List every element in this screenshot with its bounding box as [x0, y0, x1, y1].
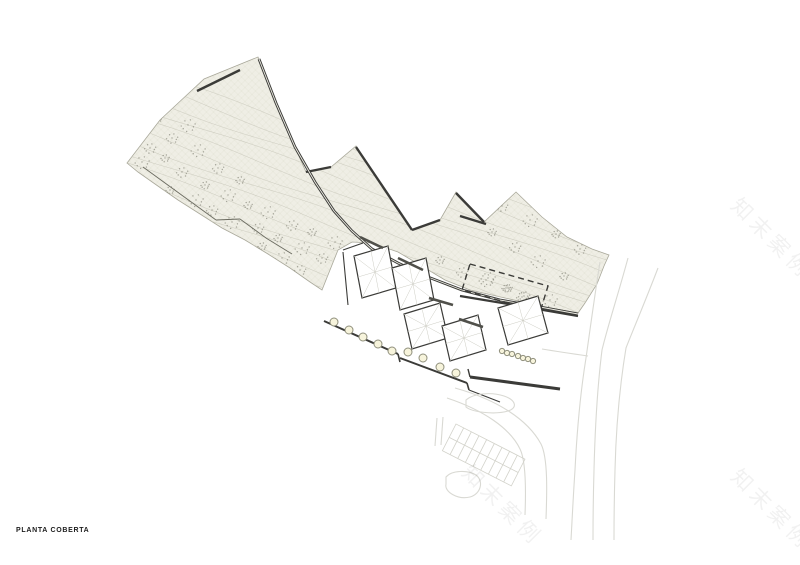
site-plan-page: 知末案例 知末案例 知末案例 PLANTA COBERTA: [0, 0, 800, 565]
site-plan-drawing: [0, 0, 800, 565]
drawing-title: PLANTA COBERTA: [16, 527, 89, 534]
